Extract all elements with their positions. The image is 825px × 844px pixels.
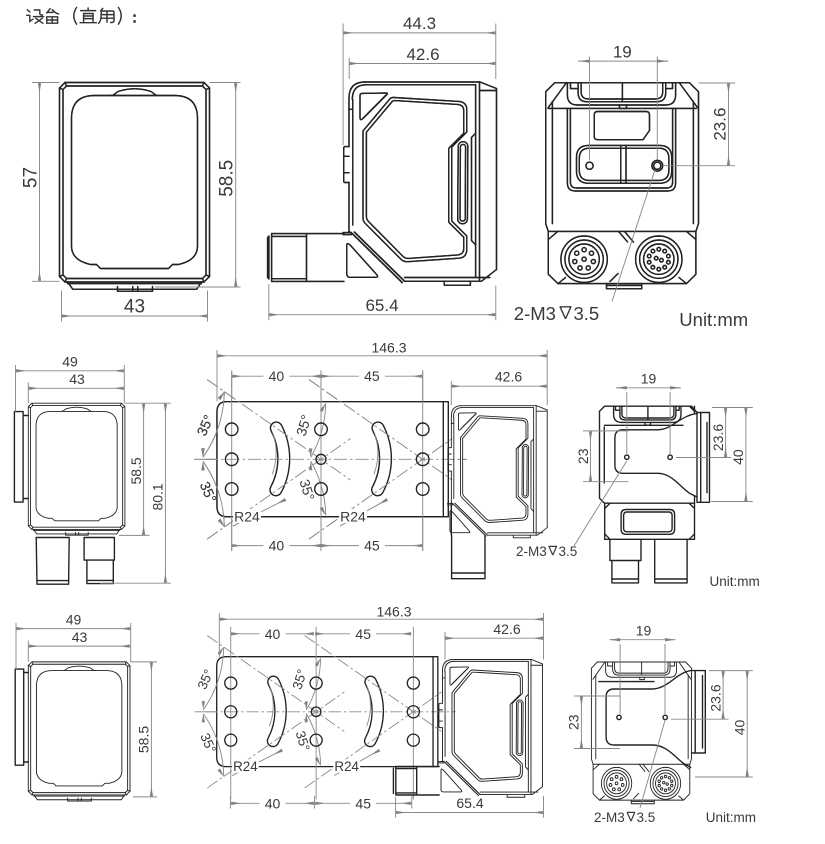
svg-text:65.4: 65.4 [365,296,398,315]
svg-text:3.5: 3.5 [574,303,600,324]
svg-text:45: 45 [364,368,380,384]
svg-text:3.5: 3.5 [559,544,578,559]
svg-text:45: 45 [355,626,371,642]
svg-text:58.5: 58.5 [136,726,152,753]
svg-text:23.6: 23.6 [710,108,729,141]
svg-text:57: 57 [20,167,41,188]
svg-text:19: 19 [613,43,632,62]
svg-text:58.5: 58.5 [217,160,238,197]
svg-text:43: 43 [69,371,85,387]
svg-text:42.6: 42.6 [406,45,439,64]
svg-text:Unit:mm: Unit:mm [710,574,760,589]
svg-text:23.6: 23.6 [710,424,726,451]
svg-text:2-M3: 2-M3 [514,303,556,324]
svg-text:58.5: 58.5 [128,457,144,484]
svg-text:45: 45 [364,538,380,554]
svg-text:42.6: 42.6 [495,369,522,385]
svg-text:23: 23 [575,448,591,464]
svg-text:43: 43 [72,629,88,645]
svg-text:19: 19 [641,371,657,387]
svg-text:65.4: 65.4 [456,795,483,811]
svg-text:3.5: 3.5 [637,810,656,825]
svg-text:49: 49 [66,612,82,628]
svg-text:146.3: 146.3 [371,340,406,356]
svg-text:Unit:mm: Unit:mm [679,309,748,330]
svg-text:23: 23 [566,714,582,730]
svg-text:40: 40 [265,795,281,811]
svg-text:2-M3: 2-M3 [594,810,625,825]
svg-text:Unit:mm: Unit:mm [706,810,756,825]
svg-text:43: 43 [124,297,145,318]
svg-text:80.1: 80.1 [150,483,166,510]
svg-text:45: 45 [355,795,371,811]
svg-text:40: 40 [732,720,748,736]
svg-text:44.3: 44.3 [403,14,436,33]
svg-text:19: 19 [636,623,652,639]
svg-text:40: 40 [269,368,285,384]
svg-text:2-M3: 2-M3 [516,544,547,559]
svg-text:40: 40 [730,449,746,465]
svg-text:42.6: 42.6 [493,621,520,637]
svg-text:146.3: 146.3 [376,604,411,620]
svg-text:40: 40 [269,538,285,554]
svg-text:23.6: 23.6 [707,684,723,711]
svg-text:40: 40 [265,626,281,642]
svg-text:49: 49 [62,354,78,370]
